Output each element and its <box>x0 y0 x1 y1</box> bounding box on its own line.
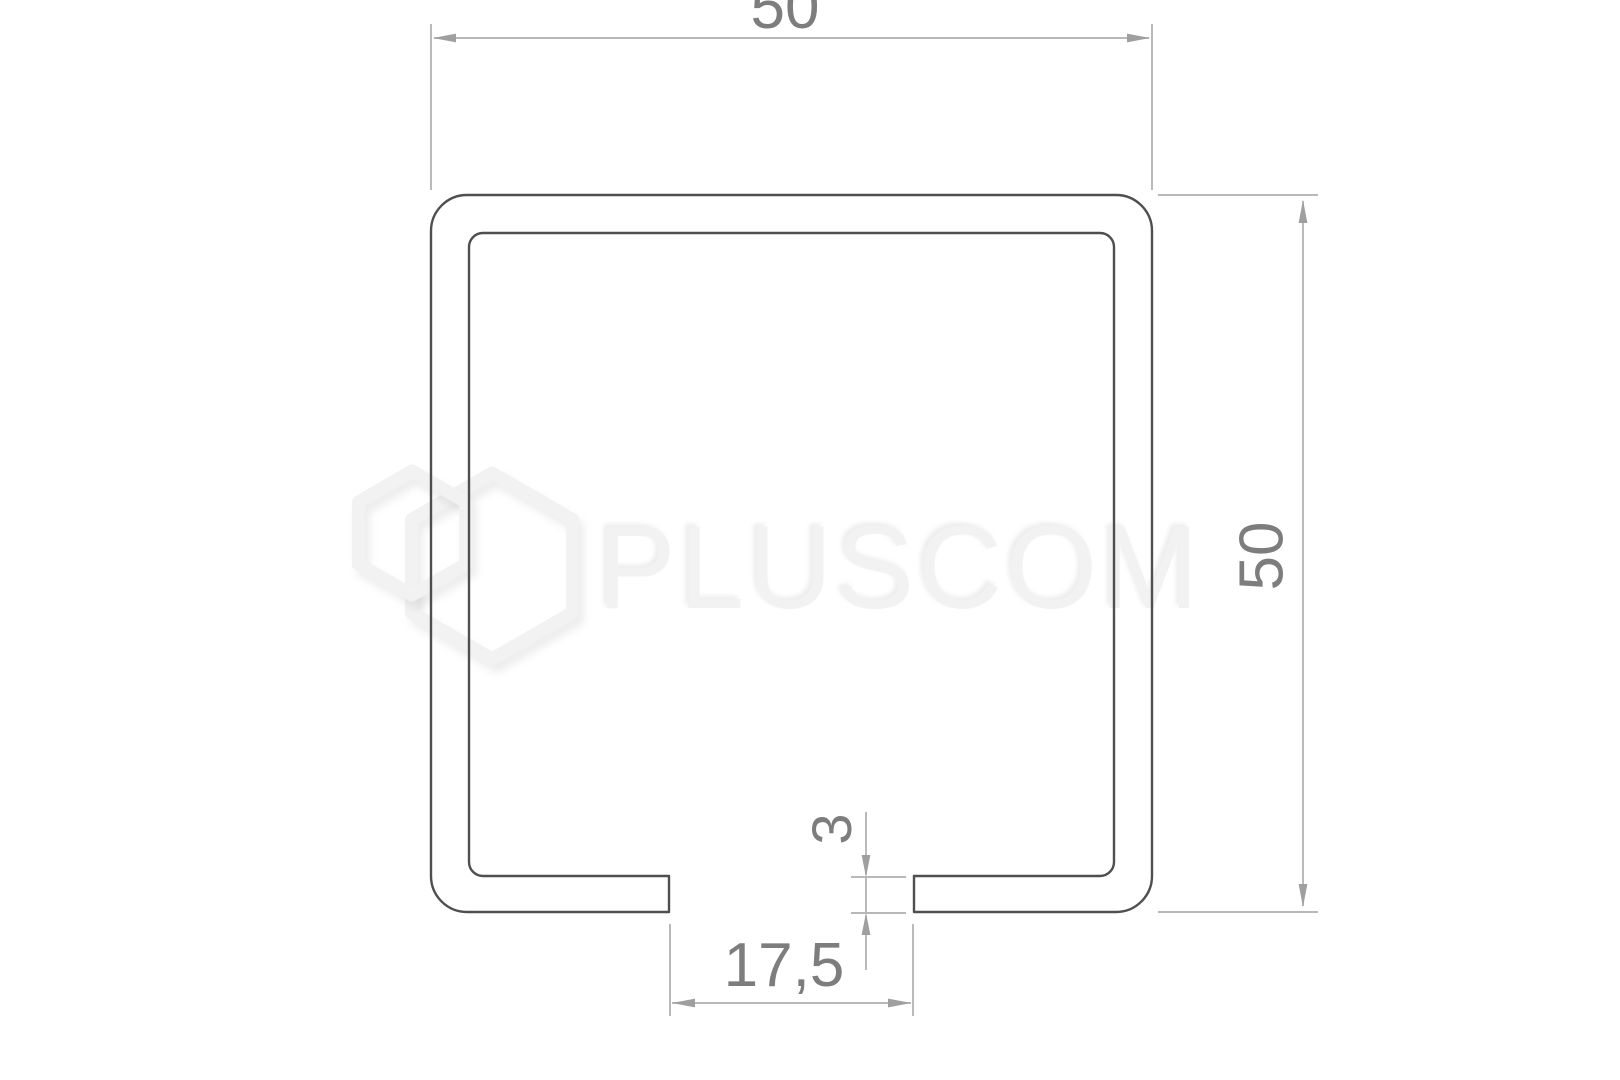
profile-outline <box>431 195 1152 912</box>
arrowhead-left <box>672 999 695 1008</box>
dimension-bottom-gap: 17,5 <box>670 924 913 1016</box>
dimension-top-width: 50 <box>431 0 1152 190</box>
hexagon-large-icon <box>412 473 573 659</box>
dimension-label-bottom-gap: 17,5 <box>724 931 845 1000</box>
arrowhead-right <box>888 999 911 1008</box>
dimension-label-top-width: 50 <box>751 0 820 42</box>
arrowhead-right <box>1127 34 1150 43</box>
arrowhead-up <box>862 913 871 935</box>
dimension-right-height: 50 <box>1158 195 1318 912</box>
double-hexagon-icon <box>358 471 572 659</box>
arrowhead-left <box>433 34 456 43</box>
arrowhead-down <box>1299 884 1308 907</box>
dimension-label-lip-thickness: 3 <box>800 813 863 844</box>
drawing-sheet: PLUSCOM 50 50 <box>0 0 1620 1080</box>
arrowhead-down <box>862 855 871 877</box>
arrowhead-up <box>1299 200 1308 223</box>
technical-drawing: 50 50 17,5 3 <box>0 0 1620 1080</box>
dimension-label-right-height: 50 <box>1227 522 1296 591</box>
